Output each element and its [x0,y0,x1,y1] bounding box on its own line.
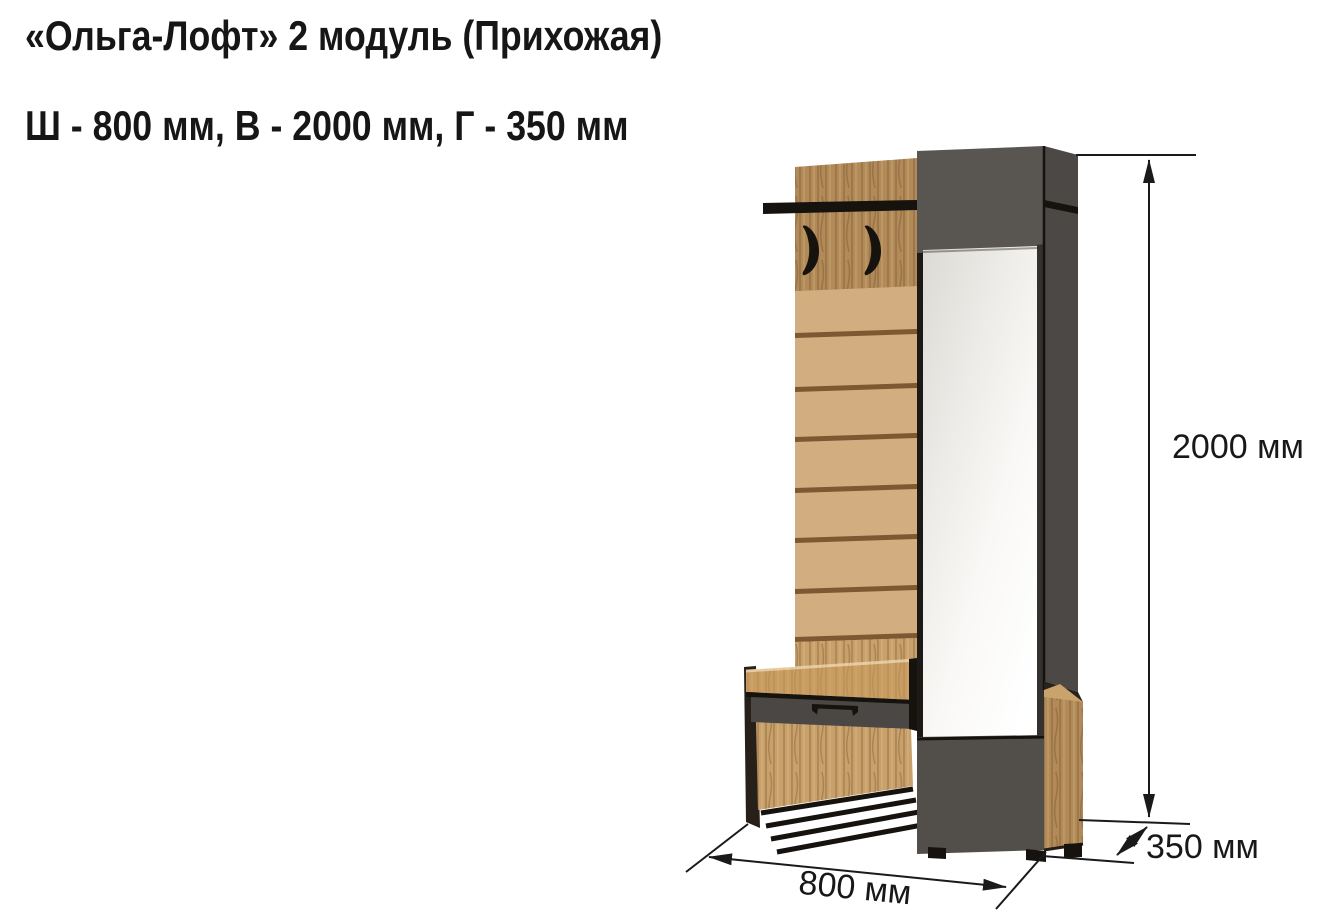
right-side [1044,146,1083,851]
furniture-illustration: 2000 мм 800 мм 350 мм [0,0,1340,924]
coat-panel-section [763,158,917,672]
column-top-panel [917,146,1044,253]
slat-panel [795,286,917,672]
oak-header-grain-texture [795,158,917,294]
bench-module [744,658,922,852]
column-lower-shade [917,735,1044,854]
mirror-bottom-line [917,737,1044,739]
width-extension-left [686,824,748,872]
height-extension-bottom [1079,820,1190,824]
foot [1064,843,1082,858]
mirror-column [917,146,1044,854]
side-panel [1044,146,1078,692]
width-dimension-label: 800 мм [797,864,913,913]
bench-right-support [909,658,917,731]
height-dimension-label: 2000 мм [1172,428,1304,466]
foot [928,847,946,859]
width-extension-right [996,852,1046,909]
depth-extension-front [1042,856,1134,863]
lower-cabinet-grain [1044,697,1083,851]
bench-back-grain [756,722,913,810]
depth-dimension-line [1117,827,1147,855]
mirror [923,246,1037,741]
depth-dimension-label: 350 мм [1146,828,1259,866]
